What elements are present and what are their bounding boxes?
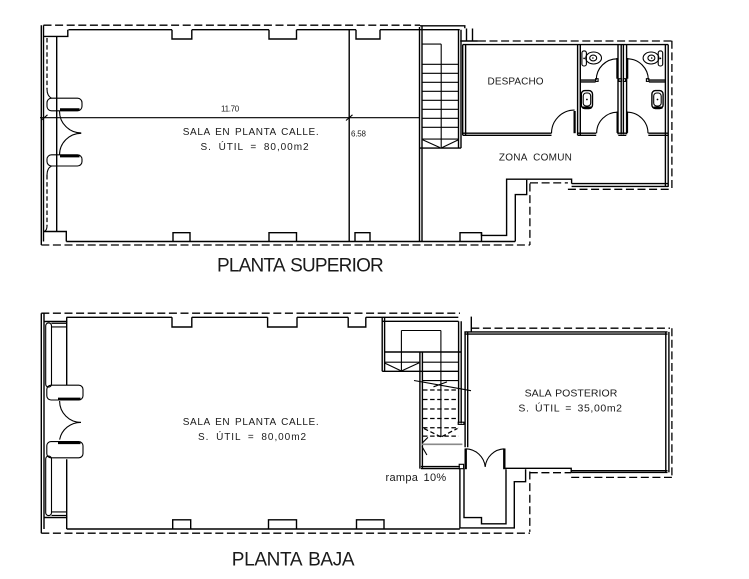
svg-text:S. ÚTIL = 80,00m2: S. ÚTIL = 80,00m2: [198, 430, 307, 443]
svg-text:S. ÚTIL = 35,00m2: S. ÚTIL = 35,00m2: [518, 401, 622, 414]
svg-text:SALA EN PLANTA CALLE.: SALA EN PLANTA CALLE.: [183, 127, 319, 138]
svg-text:rampa 10%: rampa 10%: [386, 472, 447, 484]
svg-text:SALA POSTERIOR: SALA POSTERIOR: [525, 388, 618, 400]
svg-text:PLANTA BAJA: PLANTA BAJA: [232, 550, 355, 571]
svg-text:SALA EN PLANTA CALLE.: SALA EN PLANTA CALLE.: [183, 417, 319, 428]
svg-text:S. ÚTIL = 80,00m2: S. ÚTIL = 80,00m2: [201, 140, 310, 153]
svg-text:PLANTA SUPERIOR: PLANTA SUPERIOR: [217, 256, 383, 277]
svg-text:11.70: 11.70: [221, 105, 240, 114]
svg-text:6.58: 6.58: [351, 130, 367, 139]
svg-text:ZONA COMUN: ZONA COMUN: [499, 152, 572, 163]
svg-text:DESPACHO: DESPACHO: [488, 76, 544, 87]
